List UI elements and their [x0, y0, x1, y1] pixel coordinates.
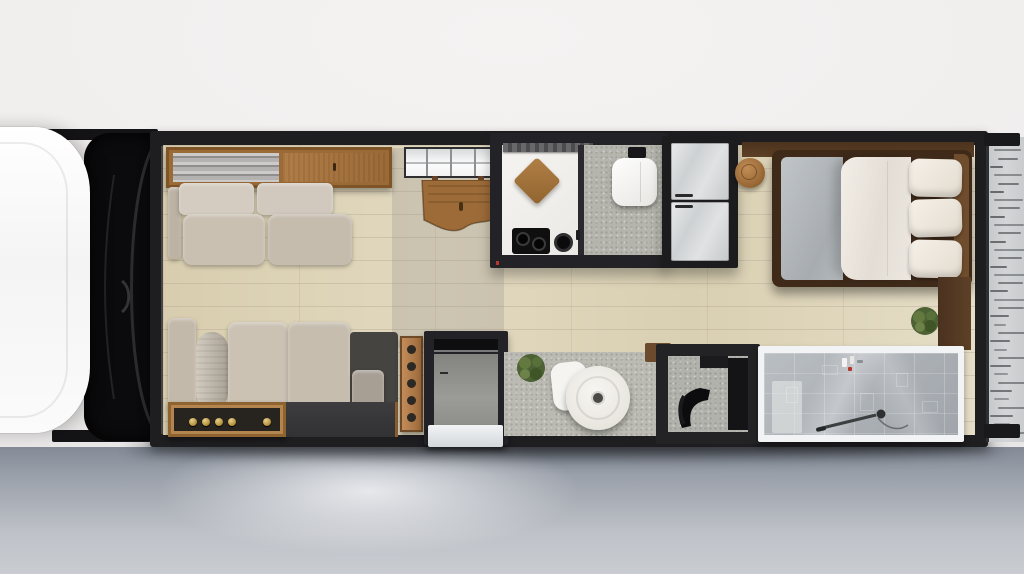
media-console — [168, 402, 286, 437]
deck-board-gap — [994, 249, 1024, 251]
refrigerator — [662, 136, 738, 268]
window-mullion — [450, 149, 452, 176]
table-hub — [591, 391, 605, 405]
sofa-seat-cushion — [288, 322, 350, 411]
deck-board-gap — [998, 332, 1024, 334]
gas-cooktop — [512, 228, 550, 254]
wall-shelf — [700, 356, 728, 368]
deck-board-gap — [998, 232, 1021, 234]
deck-board-gap — [990, 266, 1007, 268]
bed-pillow — [909, 158, 963, 197]
toiletry-item — [850, 356, 854, 364]
table-keyhole — [459, 202, 463, 211]
panel-knob — [407, 413, 416, 422]
sofa-seat-cushion — [268, 214, 352, 265]
duvet-crease — [887, 161, 888, 276]
bed-pillow — [909, 199, 963, 239]
deck-board-gap — [994, 149, 1021, 151]
deck-board-gap — [990, 365, 1011, 367]
potted-plant — [515, 350, 547, 388]
console-knob — [228, 418, 236, 426]
tile-joint — [822, 365, 838, 375]
deck-board-gap — [998, 382, 1024, 384]
deck-board-gap — [990, 241, 1006, 243]
deck-board-gap — [994, 324, 1006, 326]
bolster-pillow — [196, 332, 228, 409]
panel-knob — [407, 362, 416, 371]
door-panel — [434, 354, 498, 428]
rear-deck — [988, 137, 1024, 442]
stool-grain-ring — [741, 164, 757, 180]
deck-board-gap — [998, 307, 1024, 309]
panel-knob — [407, 345, 416, 354]
window-mullion — [474, 149, 476, 176]
console-knob — [263, 418, 271, 426]
door-handle — [440, 372, 448, 374]
tile-joint — [922, 401, 938, 413]
panel-knob — [407, 379, 416, 388]
white-duvet — [841, 157, 911, 280]
deck-edge — [986, 137, 989, 442]
burner — [532, 237, 546, 251]
sofa — [168, 181, 358, 267]
burner — [516, 232, 530, 246]
deck-board-gap — [998, 257, 1022, 259]
deck-board-gap — [998, 183, 1019, 185]
toiletry-item — [842, 358, 847, 367]
deck-board-gap — [998, 158, 1018, 160]
transom-window — [434, 339, 498, 352]
deck-board-gap — [990, 390, 1012, 392]
deck-board-gap — [994, 174, 1022, 176]
deck-board-gap — [990, 191, 1004, 193]
console-knob — [215, 418, 223, 426]
window-mullion — [426, 149, 428, 176]
side-window — [404, 147, 499, 178]
deck-bracket — [984, 424, 1020, 438]
panel-knob — [407, 396, 416, 405]
deck-board-gap — [994, 224, 1024, 226]
kitchen-wetbath-module — [490, 133, 668, 268]
accent-marker — [496, 261, 499, 265]
sofa-armrest — [168, 318, 196, 411]
toilet — [612, 158, 657, 206]
desk-chair — [672, 374, 714, 432]
toilet-lid-seam — [640, 162, 641, 202]
fridge-door — [671, 202, 729, 261]
deck-board-gap — [994, 299, 1024, 301]
deck-board-gap — [994, 373, 1008, 375]
sofa-seat-cushion — [228, 322, 288, 411]
deck-board-gap — [990, 415, 1013, 417]
wooden-stool — [735, 158, 765, 188]
rv-floorplan-render — [0, 0, 1024, 574]
deck-bracket — [984, 133, 1020, 146]
tile-joint — [786, 387, 798, 403]
toiletry-item — [857, 360, 863, 363]
cab-roof — [0, 127, 90, 433]
entry-step — [428, 425, 503, 447]
deck-board-gap — [990, 290, 1008, 292]
fridge-handle — [675, 205, 693, 208]
potted-plant — [908, 304, 942, 338]
chaise-sofa — [168, 318, 398, 412]
sofa-back-cushion — [179, 183, 254, 215]
pillow-stack — [909, 159, 962, 278]
deck-board-gap — [990, 166, 1003, 168]
deck-board-gap — [990, 315, 1009, 317]
deck-board-gap — [994, 274, 1024, 276]
gray-sheet — [781, 157, 843, 280]
deck-board-gap — [998, 407, 1024, 409]
shower-wand — [816, 407, 916, 435]
deck-board-gap — [998, 282, 1023, 284]
deck-board-gap — [994, 349, 1007, 351]
walnut-cabinet — [938, 277, 971, 350]
bed-pillow — [909, 239, 963, 278]
deck-board-gap — [994, 398, 1009, 400]
base-cabinet — [286, 402, 398, 437]
shower-tiles — [764, 353, 958, 435]
shower-room — [758, 346, 964, 442]
fridge-handle — [675, 194, 693, 197]
overhead-cabinet — [283, 153, 385, 182]
deck-board-gap — [990, 340, 1010, 342]
fridge-door — [671, 143, 729, 200]
cafe-table — [566, 366, 630, 430]
control-panel — [400, 336, 423, 432]
desk-nook — [656, 344, 760, 444]
console-knob — [189, 418, 197, 426]
tile-joint — [860, 393, 874, 411]
tile-joint — [896, 373, 908, 387]
rolled-textiles — [173, 153, 279, 182]
windshield — [84, 133, 158, 441]
trivet — [554, 233, 573, 252]
console-knob — [202, 418, 210, 426]
windshield-reflections — [84, 133, 158, 441]
deck-board-gap — [998, 357, 1024, 359]
desk — [728, 358, 748, 430]
cabinet-keyhole — [333, 163, 336, 171]
ground-plane — [0, 447, 1024, 574]
oil-bottle — [576, 230, 580, 240]
cab-roof-panel-line — [0, 142, 68, 418]
toiletry-item — [848, 367, 852, 371]
deck-board-gap — [998, 207, 1020, 209]
sofa-back-cushion — [257, 183, 333, 215]
toilet-cistern — [628, 147, 646, 158]
deck-board-gap — [990, 216, 1005, 218]
bed — [772, 150, 972, 287]
deck-board-gap — [994, 199, 1023, 201]
wall-highlight — [161, 146, 163, 434]
sofa-seat-cushion — [183, 214, 265, 265]
